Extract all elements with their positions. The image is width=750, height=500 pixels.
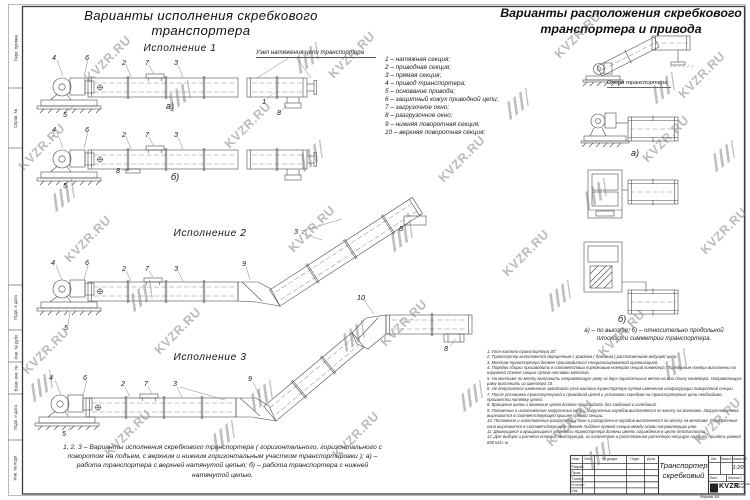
callout-3: 3 xyxy=(173,379,177,388)
callout-3: 3 xyxy=(294,227,298,236)
note-item: 7. После установки транспортерной и прив… xyxy=(487,392,744,403)
legend-item: 1 – натяжная секция; xyxy=(385,56,498,64)
note-item: 4. Порядок сборки производить в соответс… xyxy=(487,365,744,376)
callout-2: 2 xyxy=(121,379,125,388)
tb-doc-title: Транспортер скребковый xyxy=(659,461,708,482)
tb-col-docnum: № докум. xyxy=(594,457,626,461)
callout-6: 6 xyxy=(85,125,89,134)
execution-1a-drawing xyxy=(37,74,317,113)
tb-sheet-label: Лист xyxy=(710,476,717,480)
tb-row-nkontr: Н.контр. xyxy=(572,483,586,487)
tb-sheets-value: 1 xyxy=(740,476,742,480)
callout-8: 8 xyxy=(399,224,403,233)
left-title: Варианты исполнения скребкового транспор… xyxy=(55,8,347,38)
callout-9: 9 xyxy=(242,259,246,268)
tb-row-utv: Утв. xyxy=(572,489,579,493)
parts-legend: 1 – натяжная секция; 2 – приводная секци… xyxy=(385,56,498,137)
bottom-caption: 1, 2, 3 – Варианты исполнения скребковог… xyxy=(55,443,390,480)
callout-8: 8 xyxy=(116,166,120,175)
callout-6: 6 xyxy=(83,373,87,382)
tb-row-tkontr: Т.контр. xyxy=(572,477,585,481)
callout-5: 5 xyxy=(62,429,66,438)
tb-col-podp: Подп. xyxy=(626,457,644,461)
placement-a-drawing xyxy=(581,113,678,147)
callout-3: 3 xyxy=(174,130,178,139)
support-label: Опора транспортера xyxy=(607,80,671,88)
callout-7: 7 xyxy=(144,379,148,388)
callout-10: 10 xyxy=(357,293,365,302)
callout-6: 6 xyxy=(85,258,89,267)
margin-field: Подп. и дата xyxy=(8,285,23,330)
margin-field: Справ. № xyxy=(8,88,23,148)
callout-2: 2 xyxy=(122,130,126,139)
callout-3: 3 xyxy=(174,58,178,67)
callout-7: 7 xyxy=(145,264,149,273)
placement-caption: а) – по высоте; б) – относительно продол… xyxy=(560,327,748,343)
legend-item: 6 – защитный кожух приводной цепи; xyxy=(385,96,498,104)
drawing-sheet: .dsh{stroke-dasharray:5 2.5;stroke:#8a8a… xyxy=(0,0,750,500)
technical-notes: 1. Угол наклона транспортера 30°. 2. Тра… xyxy=(487,349,744,445)
callout-9: 9 xyxy=(248,374,252,383)
callout-5: 5 xyxy=(64,323,68,332)
execution-2-drawing xyxy=(37,196,426,315)
callout-3: 3 xyxy=(174,264,178,273)
legend-item: 7 – загрузочное окно; xyxy=(385,104,498,112)
tb-row-razrab: Разраб. xyxy=(572,465,585,469)
margin-field: Перв. примен. xyxy=(8,6,23,88)
legend-item: 3 – прямая секция; xyxy=(385,72,498,80)
legend-item: 9 – нижняя поворотная секция; xyxy=(385,121,498,129)
kvzr-logo-subtext: КОТЕЛЬНЫЙ ЗАВОД xyxy=(736,484,745,490)
tb-sheets-label: Листов xyxy=(728,476,739,480)
callout-4: 4 xyxy=(49,373,53,382)
note-item: 12. Для выбора и расчета опорных констру… xyxy=(487,434,744,445)
legend-item: 8 – разгрузочное окно; xyxy=(385,112,498,120)
callout-4: 4 xyxy=(51,258,55,267)
placement-label-a: а) xyxy=(631,148,639,158)
margin-field: Инв. № подл. xyxy=(8,440,23,494)
right-title: Варианты расположения скребкового трансп… xyxy=(498,6,744,37)
tb-scale-label: Масштаб xyxy=(732,457,744,461)
margin-field: Взам. инв. № xyxy=(8,362,23,394)
execution-2-heading: Исполнение 2 xyxy=(160,228,260,239)
view-label-a: а) xyxy=(166,101,174,111)
view-label-b: б) xyxy=(171,172,179,182)
placement-label-b: б) xyxy=(618,314,626,324)
callout-4: 4 xyxy=(52,125,56,134)
callout-5: 5 xyxy=(63,110,67,119)
legend-item: 2 – приводная секция; xyxy=(385,64,498,72)
tb-col-izm: Изм. xyxy=(570,457,582,461)
note-item: 9. Положение и изготовление загрузочных … xyxy=(487,408,744,419)
tb-row-prov: Пров. xyxy=(572,471,582,475)
margin-field: Подп. и дата xyxy=(8,394,23,440)
callout-2: 2 xyxy=(122,264,126,273)
note-item: 6. Не допускается изменение заводского у… xyxy=(487,386,744,391)
tb-scale-value: 1:20 xyxy=(732,465,744,471)
callout-8: 8 xyxy=(277,108,281,117)
note-item: 10. Положение и изготовление разгрузочны… xyxy=(487,418,744,429)
callout-8: 8 xyxy=(444,344,448,353)
callout-7: 7 xyxy=(145,58,149,67)
callout-4: 4 xyxy=(52,53,56,62)
tension-unit-heading: Узел натяжения цепи транспортера xyxy=(256,49,376,58)
callout-5: 5 xyxy=(63,181,67,190)
format-label: Формат А3 xyxy=(700,495,719,499)
execution-3-drawing xyxy=(35,313,472,430)
callout-1: 1 xyxy=(262,97,266,106)
callout-7: 7 xyxy=(145,130,149,139)
margin-field: Инв. № дубл. xyxy=(8,330,23,362)
placement-b1-drawing xyxy=(588,170,678,218)
placement-top-drawing xyxy=(583,35,693,86)
legend-item: 10 – верхняя поворотная секция; xyxy=(385,129,498,137)
tb-col-data: Дата xyxy=(644,457,658,461)
tb-col-list: Лист xyxy=(582,457,594,461)
tb-lit-label: Лит. xyxy=(708,457,720,461)
callout-2: 2 xyxy=(122,58,126,67)
placement-b2-drawing xyxy=(584,242,678,316)
tb-mass-label: Масса xyxy=(720,457,732,461)
callout-6: 6 xyxy=(85,53,89,62)
execution-1-heading: Исполнение 1 xyxy=(130,43,230,54)
note-item: 5. На монтаже по месту выполнить направл… xyxy=(487,376,744,387)
execution-3-heading: Исполнение 3 xyxy=(160,352,260,363)
